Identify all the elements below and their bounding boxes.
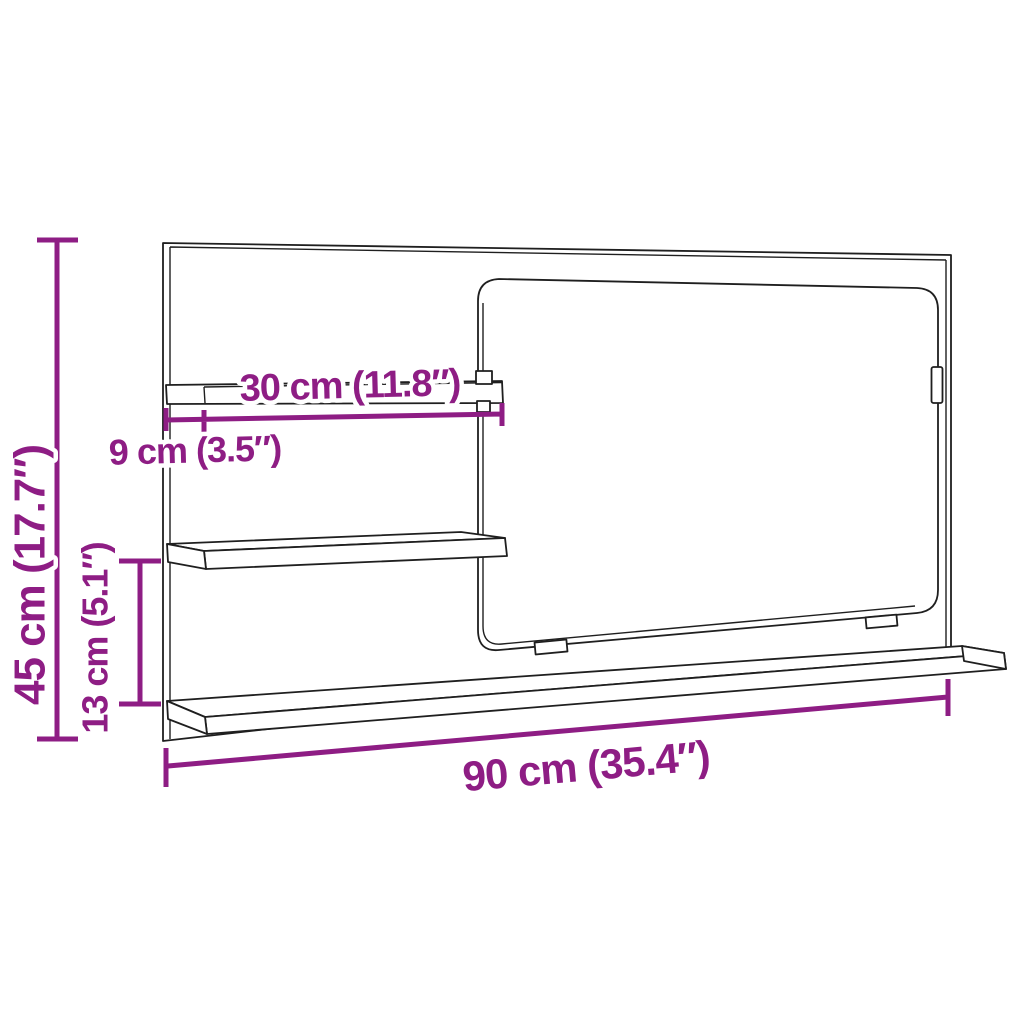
top-shelf-clip-lower [477,401,490,412]
product-dimension-diagram: 45 cm (17.7″) 13 cm (5.1″) 9 cm (3.5″) 3… [0,0,1024,1024]
mirror-cabinet-diagram-canvas: 45 cm (17.7″) 13 cm (5.1″) 9 cm (3.5″) 3… [0,0,1024,1024]
shelf-length-dimension-label: 30 cm (11.8″) [239,362,461,410]
mirror-bottom-clip-right [866,615,898,629]
mirror [478,279,943,654]
width-dimension-label: 90 cm (35.4″) [461,732,712,800]
mirror-handle [932,367,943,403]
gap-dimension-label: 13 cm (5.1″) [75,542,116,733]
shelf-depth-dimension-label: 9 cm (3.5″) [108,427,281,472]
gap-dimension-line [119,561,161,704]
mirror-outline [478,279,938,650]
mirror-bottom-clip-left [535,640,568,655]
top-shelf-clip-upper [476,371,492,384]
height-dimension-label: 45 cm (17.7″) [6,445,55,705]
